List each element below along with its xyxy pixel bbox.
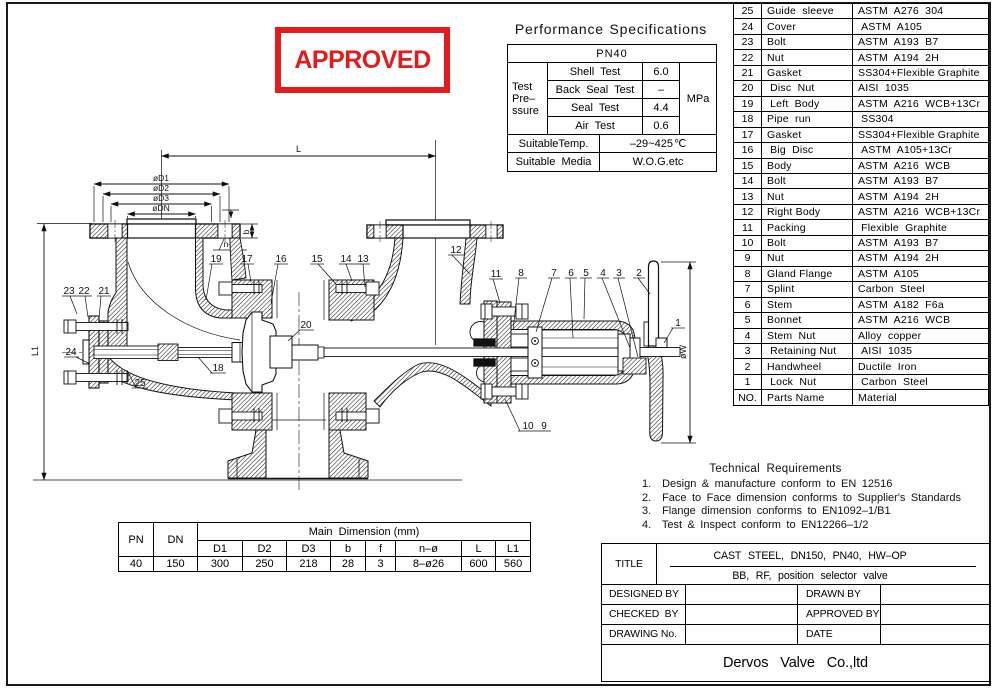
svg-text:5: 5 xyxy=(583,268,589,279)
svg-text:øD2: øD2 xyxy=(153,183,169,193)
svg-text:14: 14 xyxy=(340,254,352,265)
svg-text:15: 15 xyxy=(311,254,323,265)
svg-text:6: 6 xyxy=(568,268,574,279)
svg-text:7: 7 xyxy=(551,268,557,279)
svg-text:16: 16 xyxy=(275,254,287,265)
svg-text:21: 21 xyxy=(98,286,110,297)
svg-text:22: 22 xyxy=(78,286,90,297)
svg-text:25: 25 xyxy=(134,378,146,389)
svg-text:24: 24 xyxy=(65,347,77,358)
svg-text:3: 3 xyxy=(616,268,622,279)
svg-text:øD1: øD1 xyxy=(153,173,169,183)
svg-text:4: 4 xyxy=(600,268,606,279)
svg-text:10: 10 xyxy=(522,421,534,432)
svg-text:11: 11 xyxy=(491,269,502,280)
svg-text:9: 9 xyxy=(541,421,547,432)
svg-text:øDN: øDN xyxy=(152,203,169,213)
svg-text:øD3: øD3 xyxy=(153,193,169,203)
svg-text:b: b xyxy=(241,229,251,234)
svg-text:12: 12 xyxy=(450,245,462,256)
svg-text:L: L xyxy=(296,144,301,154)
svg-text:13: 13 xyxy=(357,254,369,265)
svg-text:18: 18 xyxy=(212,363,224,374)
svg-text:23: 23 xyxy=(63,286,75,297)
svg-text:L1: L1 xyxy=(30,346,40,356)
svg-text:19: 19 xyxy=(210,254,222,265)
svg-text:1: 1 xyxy=(675,318,681,329)
svg-text:8: 8 xyxy=(518,268,524,279)
svg-text:20: 20 xyxy=(300,320,312,331)
svg-text:2: 2 xyxy=(636,268,642,279)
svg-text:17: 17 xyxy=(241,254,253,265)
